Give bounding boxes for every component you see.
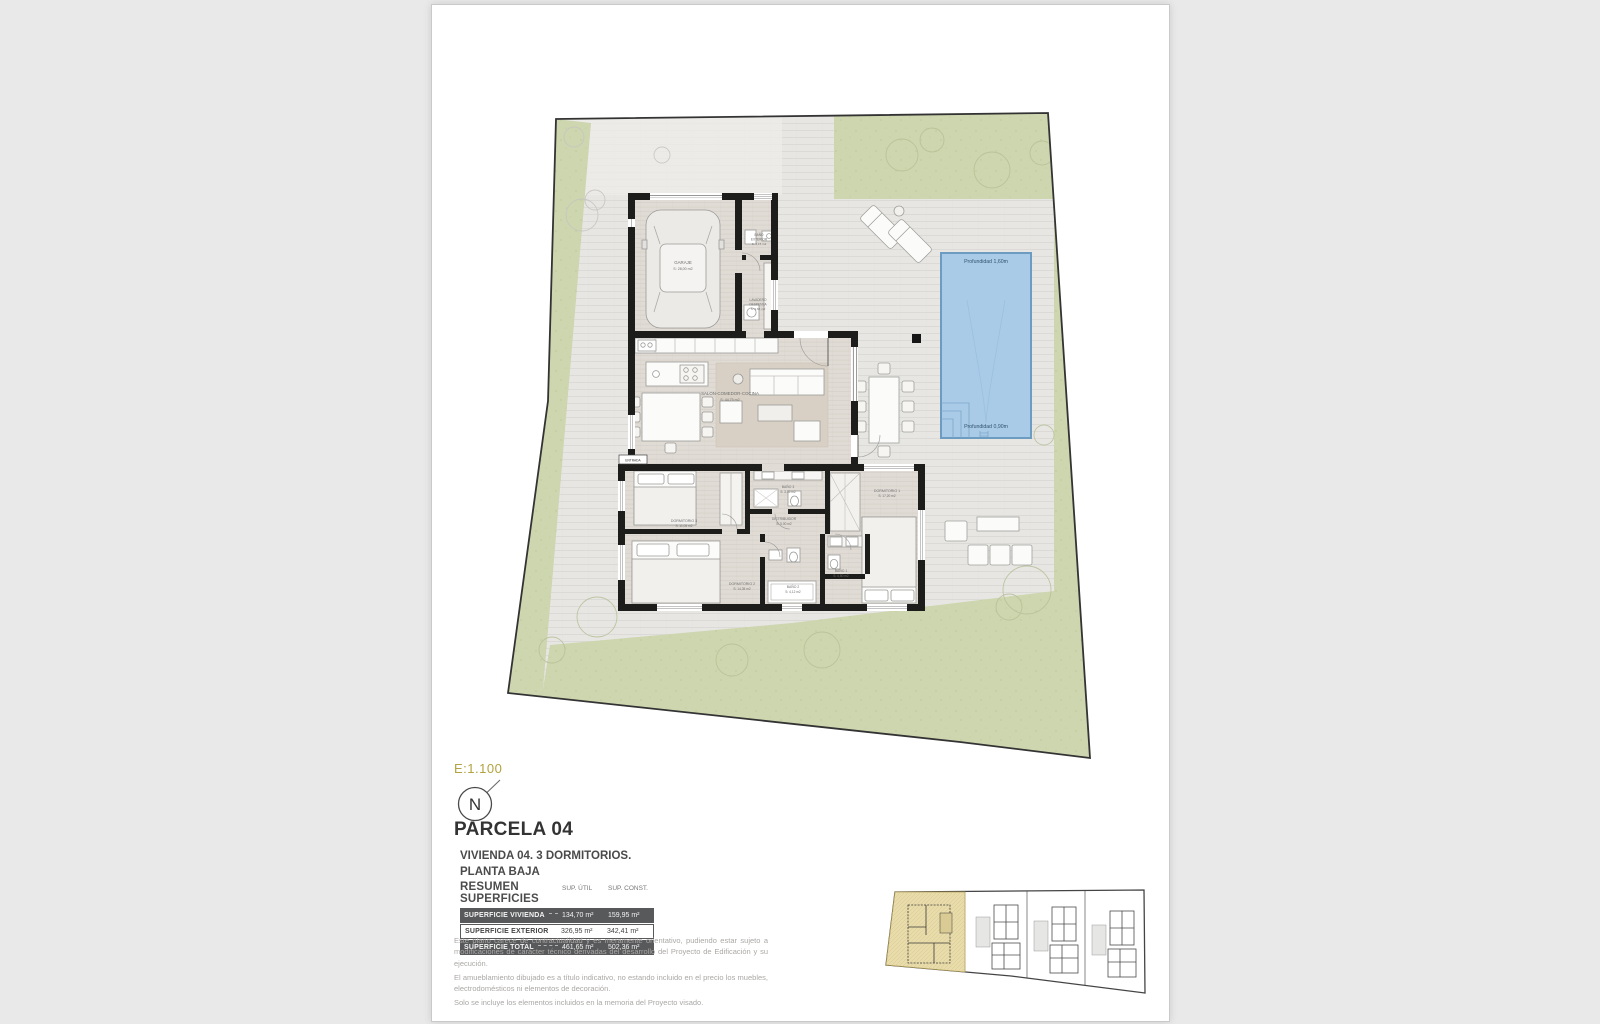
svg-text:S: 3,65 m2: S: 3,65 m2 <box>751 307 766 311</box>
plan-subtitle: VIVIENDA 04. 3 DORMITORIOS. PLANTA BAJA <box>460 849 631 880</box>
bed-dormitorio3 <box>634 471 696 525</box>
parcel-title: PARCELA 04 <box>454 819 573 841</box>
entrada-label-box: ENTRADA <box>619 455 647 464</box>
page-background: Profundidad 1,60m Profundidad 0,90m <box>0 0 1600 1024</box>
summary-heading: RESUMEN SUPERFICIES <box>460 881 562 905</box>
summary-col-util: SUP. ÚTIL <box>562 885 608 892</box>
room-label-entrada: ENTRADA <box>625 459 641 463</box>
svg-text:S: 17,20 m2: S: 17,20 m2 <box>878 494 895 498</box>
svg-text:S: 3,35 m2: S: 3,35 m2 <box>780 490 796 494</box>
room-label-distribuidor: DISTRIBUIDOR <box>772 517 797 521</box>
leader-line <box>549 913 558 914</box>
table-row-vivienda: SUPERFICIE VIVIENDA 134,70 m² 159,95 m² <box>460 908 654 923</box>
plan-sheet: Profundidad 1,60m Profundidad 0,90m <box>431 4 1170 1022</box>
room-label-bano-exterior: BAÑO <box>754 232 764 237</box>
svg-text:DESPENSA: DESPENSA <box>749 303 767 307</box>
key-plan <box>884 877 1160 1011</box>
pool-label-deep: Profundidad 1,60m <box>964 259 1008 265</box>
bed-dormitorio1 <box>862 517 916 603</box>
room-label-garaje-area: S: 28,00 m2 <box>673 267 692 271</box>
subtitle-line-1: VIVIENDA 04. 3 DORMITORIOS. <box>460 849 631 865</box>
subtitle-line-2: PLANTA BAJA <box>460 865 631 881</box>
site-plan: Profundidad 1,60m Profundidad 0,90m <box>432 5 1169 775</box>
room-label-dormitorio3: DORMITORIO 3 <box>671 519 697 523</box>
bed-dormitorio2 <box>632 541 720 603</box>
svg-text:S: 11,05 m2: S: 11,05 m2 <box>676 524 693 528</box>
room-label-garaje: GARAJE <box>674 260 692 265</box>
room-label-salon: SALON-COMEDOR-COCINA <box>701 391 759 396</box>
room-label-bano3: BAÑO 3 <box>782 484 795 489</box>
svg-text:S: 4,50 m2: S: 4,50 m2 <box>833 574 849 578</box>
wardrobe-dormitorio1 <box>830 473 860 531</box>
room-label-dormitorio1: DORMITORIO 1 <box>874 489 900 493</box>
pool-label-shallow: Profundidad 0,90m <box>964 424 1008 430</box>
north-letter: N <box>469 795 481 814</box>
disclaimer-text: Este plano carece de contractualidad y e… <box>454 935 768 1012</box>
svg-text:S: 4,15 m2: S: 4,15 m2 <box>752 242 767 246</box>
keyplan-parcel-highlight <box>886 892 965 972</box>
room-label-dormitorio2: DORMITORIO 2 <box>729 582 755 586</box>
terrace-marker <box>912 334 921 343</box>
pool: Profundidad 1,60m Profundidad 0,90m <box>941 253 1031 438</box>
svg-text:S: 4,12 m2: S: 4,12 m2 <box>785 590 801 594</box>
svg-text:S: 44,75 m2: S: 44,75 m2 <box>720 398 739 402</box>
svg-text:S: 14,35 m2: S: 14,35 m2 <box>733 587 750 591</box>
room-label-bano2: BAÑO 2 <box>787 584 800 589</box>
room-label-bano1: BAÑO 1 <box>835 568 848 573</box>
summary-col-const: SUP. CONST. <box>608 885 654 892</box>
svg-text:EXTERIOR: EXTERIOR <box>751 238 768 242</box>
room-label-lavadero: LAVADERO <box>750 298 767 302</box>
scale-label: E:1.100 <box>454 761 502 776</box>
summary-header: RESUMEN SUPERFICIES SUP. ÚTIL SUP. CONST… <box>460 881 654 905</box>
svg-text:S: 5,00 m2: S: 5,00 m2 <box>776 522 792 526</box>
